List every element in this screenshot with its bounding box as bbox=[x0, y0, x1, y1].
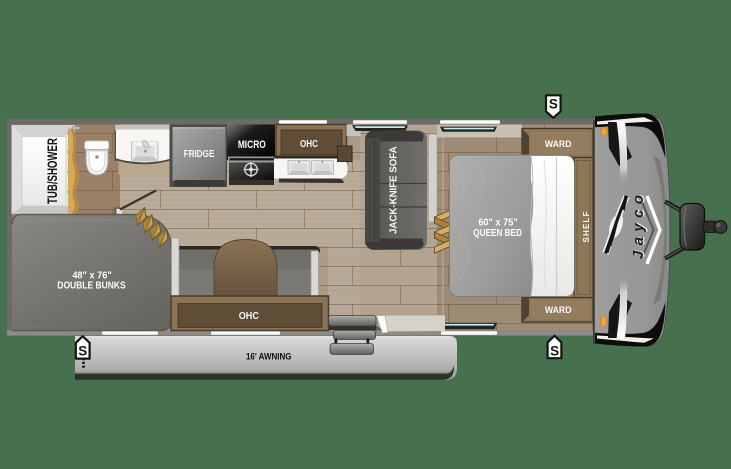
svg-text:JACK-KNIFE SOFA: JACK-KNIFE SOFA bbox=[388, 146, 399, 234]
svg-text:S: S bbox=[78, 344, 87, 359]
svg-text:QUEEN BED: QUEEN BED bbox=[473, 227, 522, 238]
svg-text:TUB/SHOWER: TUB/SHOWER bbox=[44, 138, 60, 204]
svg-text:S: S bbox=[550, 343, 559, 358]
svg-text:OHC: OHC bbox=[239, 310, 259, 322]
svg-text:OHC: OHC bbox=[300, 138, 318, 149]
svg-text:16' AWNING: 16' AWNING bbox=[246, 351, 292, 362]
svg-text:DOUBLE BUNKS: DOUBLE BUNKS bbox=[57, 280, 125, 291]
svg-text:WARD: WARD bbox=[545, 139, 572, 149]
svg-text:MICRO: MICRO bbox=[238, 139, 266, 152]
svg-text:S: S bbox=[549, 96, 558, 111]
svg-text:FRIDGE: FRIDGE bbox=[184, 148, 215, 159]
svg-text:SHELF: SHELF bbox=[582, 210, 591, 242]
svg-text:WARD: WARD bbox=[545, 305, 572, 315]
